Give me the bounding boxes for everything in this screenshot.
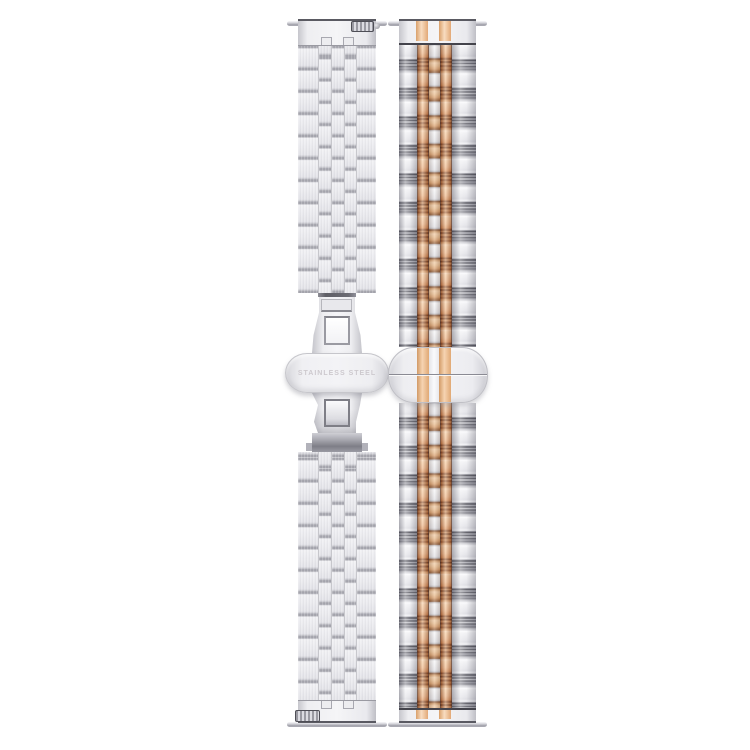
link-column-rose-gold-right [440, 45, 452, 347]
link-column-center [331, 46, 344, 293]
end-link-bottom [399, 708, 476, 723]
link-column-inner [344, 46, 357, 293]
fold-over-clasp-plate [388, 347, 488, 403]
clasp-arm-top [312, 297, 362, 353]
link-column-outer-left [298, 46, 318, 293]
link-column-inner [318, 452, 331, 700]
end-link-notch [343, 37, 354, 45]
link-column-inner [344, 452, 357, 700]
clasp-window-bottom [324, 399, 350, 427]
end-link-top [399, 19, 476, 45]
clasp-window-top [324, 316, 350, 345]
link-column-silver-left [399, 45, 417, 347]
clasp-engraving: STAINLESS STEEL [298, 370, 376, 377]
end-link-notch [321, 37, 332, 45]
rose-gold-bar [416, 21, 428, 41]
clasp-recess [321, 299, 352, 312]
clasp-buckle [312, 433, 362, 452]
link-column-outer-left [298, 452, 318, 700]
link-column-silver-right [452, 45, 476, 347]
link-column-inner [318, 46, 331, 293]
link-grid-lower [298, 452, 376, 700]
rose-gold-bar [417, 348, 429, 402]
two-tone-band [399, 19, 476, 723]
end-link-notch [321, 701, 332, 709]
silver-band: STAINLESS STEEL [298, 19, 376, 723]
jubilee-links-upper [399, 45, 476, 347]
clasp-seam-line [389, 374, 487, 375]
link-column-rose-gold-left [417, 45, 429, 347]
rose-gold-bar [439, 21, 451, 41]
product-photo: STAINLESS STEEL [0, 0, 750, 750]
link-column-silver-right [452, 403, 476, 708]
link-column-silver-left [399, 403, 417, 708]
quick-release-slider-top [351, 21, 374, 32]
link-column-center [429, 403, 440, 708]
clasp-hinge-bar [318, 293, 356, 297]
link-column-center [331, 452, 344, 700]
rose-gold-bar [416, 710, 428, 719]
link-column-outer-right [357, 46, 376, 293]
link-column-rose-gold-right [440, 403, 452, 708]
clasp-arm-bottom [312, 393, 362, 433]
quick-release-slider-bottom [295, 710, 320, 722]
end-link-notch [343, 701, 354, 709]
link-column-center [429, 45, 440, 347]
end-link-top [298, 19, 376, 46]
jubilee-links-lower [399, 403, 476, 708]
link-column-outer-right [357, 452, 376, 700]
rose-gold-bar [439, 348, 451, 402]
rose-gold-bar [439, 710, 451, 719]
center-link-bar [429, 348, 439, 402]
end-link-bottom [298, 700, 376, 723]
clasp-plate: STAINLESS STEEL [285, 353, 389, 393]
link-grid-upper [298, 46, 376, 293]
link-column-rose-gold-left [417, 403, 429, 708]
butterfly-clasp: STAINLESS STEEL [298, 293, 376, 452]
